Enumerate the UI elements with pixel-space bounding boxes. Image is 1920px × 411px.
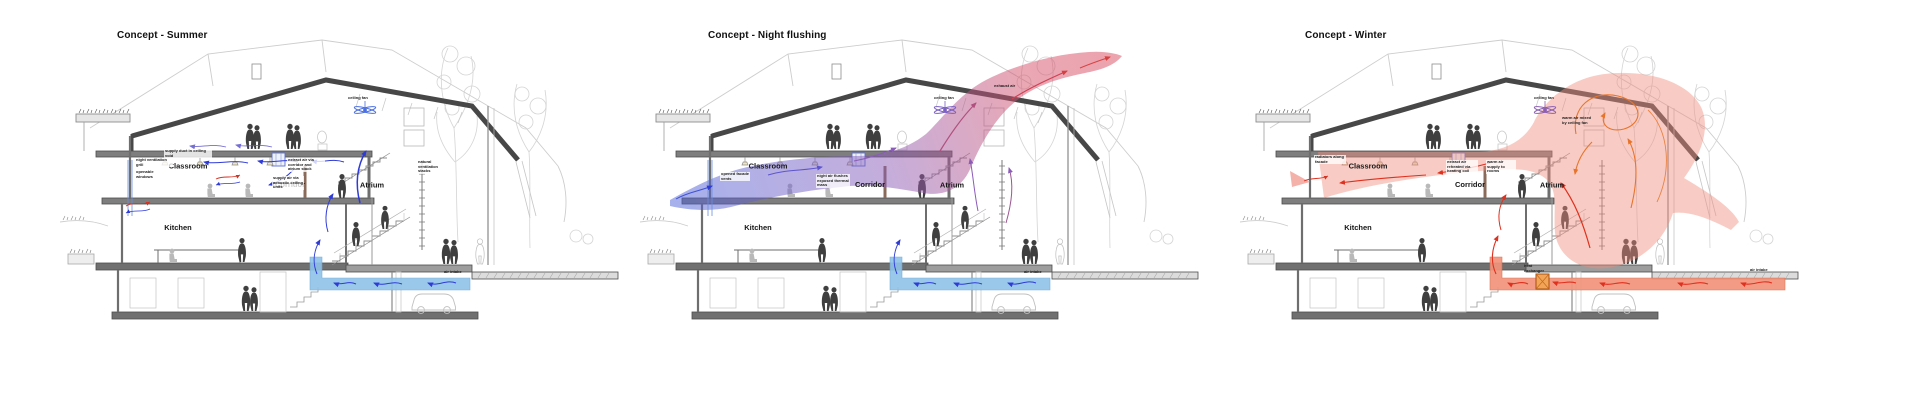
radiator-mixing-arrows (126, 175, 240, 213)
warm-air-zone (1318, 73, 1739, 268)
room-label-kitchen: Kitchen (744, 223, 772, 232)
panel-summer: Concept - Summer (60, 0, 680, 411)
room-label-corridor: Corridor (1455, 180, 1485, 189)
cool-air-intake-duct (890, 257, 1050, 290)
room-label-atrium: Atrium (1540, 181, 1564, 190)
room-label-classroom: Classroom (1349, 162, 1388, 171)
room-label-atrium: Atrium (940, 181, 964, 190)
room-label-classroom: Classroom (169, 162, 208, 171)
room-label-corridor: Corridor (855, 180, 885, 189)
diagram-page: { "page": { "background_color": "#ffffff… (0, 0, 1920, 411)
duct-arrows (894, 240, 1036, 284)
room-label-classroom: Classroom (749, 162, 788, 171)
panel-night-flushing: Concept - Night flushing (640, 0, 1260, 411)
room-label-corridor: Corridor (275, 180, 305, 189)
winter-section-svg: Classroom Corridor Atrium Kitchen (1240, 10, 1860, 400)
heat-exchanger (1536, 274, 1549, 289)
summer-section-svg: Classroom Corridor Atrium Kitchen (60, 10, 680, 400)
winter-airflow (1290, 73, 1785, 290)
room-label-kitchen: Kitchen (164, 223, 192, 232)
cool-air-intake-duct (310, 257, 470, 290)
room-label-atrium: Atrium (360, 181, 384, 190)
panel-winter: Concept - Winter (1240, 0, 1860, 411)
radiator-fin (1290, 171, 1310, 187)
room-label-kitchen: Kitchen (1344, 223, 1372, 232)
night-flushing-section-svg: Classroom Corridor Atrium Kitchen (640, 10, 1260, 400)
